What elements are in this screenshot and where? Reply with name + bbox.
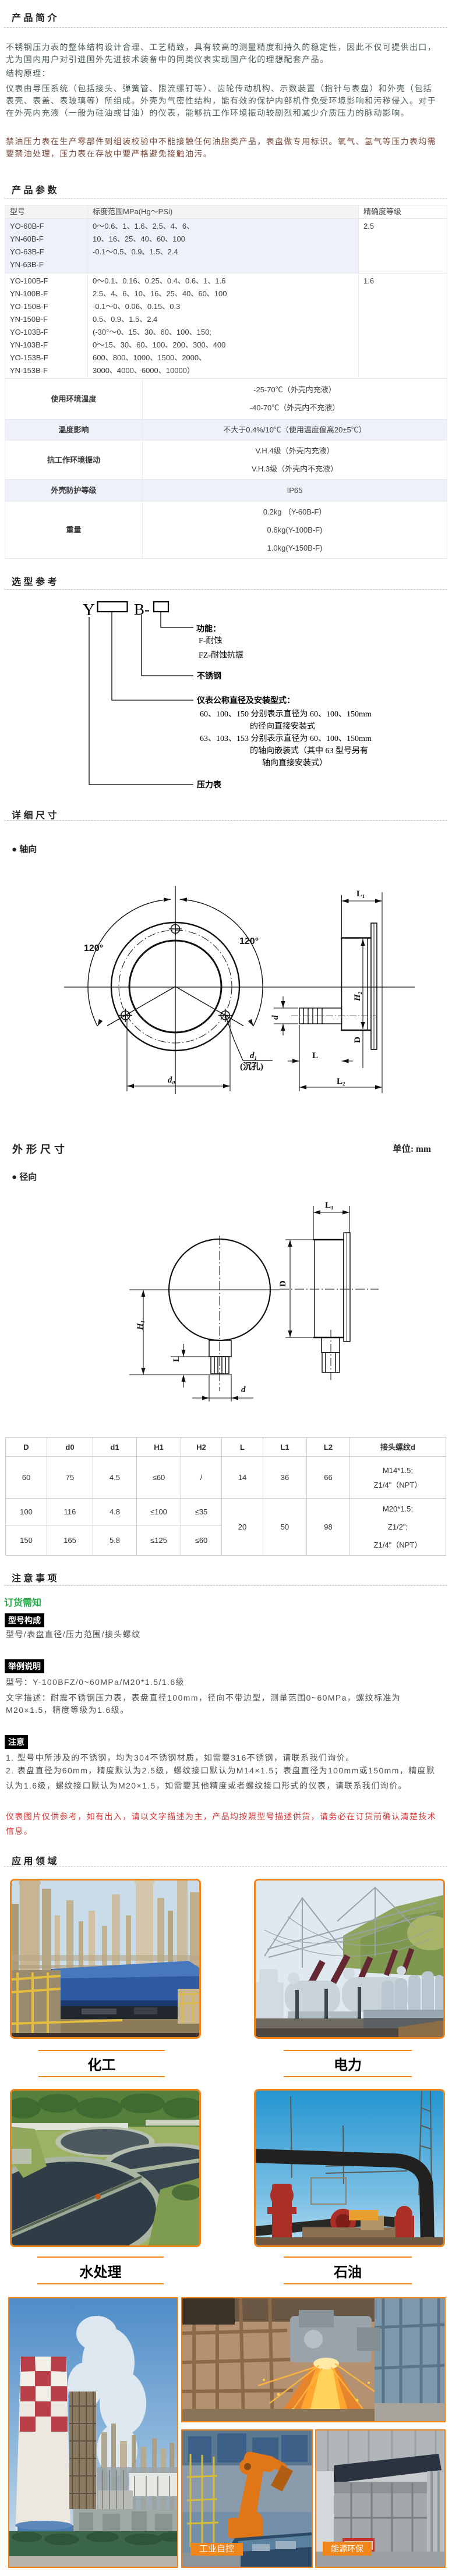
svg-text:120°: 120°: [239, 936, 259, 946]
svg-text:压力表: 压力表: [197, 780, 222, 790]
svg-text:H₂: H₂: [353, 991, 362, 1002]
svg-text:(沉孔): (沉孔): [240, 1061, 263, 1071]
svg-text:F-耐蚀: F-耐蚀: [199, 636, 222, 645]
svg-text:120°: 120°: [84, 943, 103, 953]
svg-text:63、103、153 分别表示直径为 60、100、150m: 63、103、153 分别表示直径为 60、100、150mm: [200, 733, 372, 743]
svg-text:功能：: 功能：: [196, 624, 221, 634]
svg-text:FZ-耐蚀抗振: FZ-耐蚀抗振: [199, 651, 243, 660]
svg-text:L: L: [312, 1051, 318, 1060]
svg-text:的径向直接安装式: 的径向直接安装式: [250, 721, 315, 731]
svg-text:D: D: [353, 1037, 362, 1043]
svg-text:D: D: [278, 1280, 288, 1287]
svg-text:仪表公称直径及安装型式：: 仪表公称直径及安装型式：: [196, 696, 295, 705]
svg-text:L: L: [172, 1356, 181, 1362]
svg-text:L₂: L₂: [337, 1077, 345, 1086]
svg-text:d₁: d₁: [250, 1051, 257, 1060]
svg-text:d: d: [271, 1015, 280, 1020]
svg-text:Y: Y: [83, 601, 95, 619]
svg-text:不锈钢: 不锈钢: [197, 671, 221, 681]
svg-text:d₀: d₀: [168, 1076, 175, 1085]
svg-text:H₁: H₁: [136, 1320, 145, 1330]
svg-text:轴向直接安装式）: 轴向直接安装式）: [262, 758, 327, 768]
svg-text:L₁: L₁: [356, 889, 365, 899]
svg-text:的轴向嵌装式（其中 63 型号另有: 的轴向嵌装式（其中 63 型号另有: [250, 746, 368, 755]
svg-text:L₁: L₁: [325, 1201, 334, 1210]
svg-text:60、100、150 分别表示直径为 60、100、150m: 60、100、150 分别表示直径为 60、100、150mm: [200, 709, 372, 719]
svg-text:d: d: [241, 1385, 246, 1395]
